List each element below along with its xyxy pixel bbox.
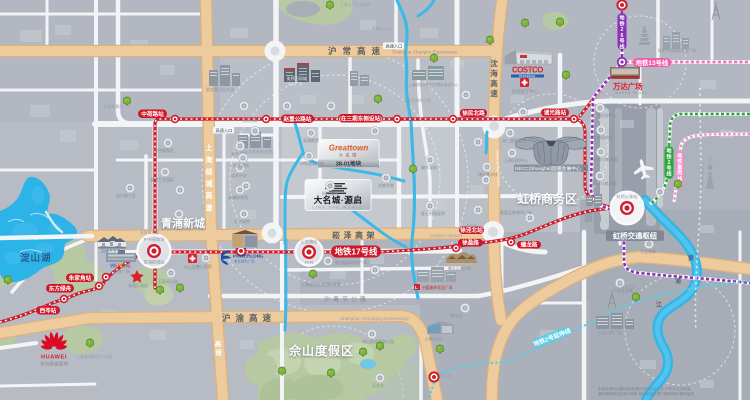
svg-text:奕仁美容医院: 奕仁美容医院 [502, 137, 526, 143]
svg-text:淀山湖: 淀山湖 [20, 252, 52, 264]
svg-text:P+R: P+R [305, 260, 313, 265]
svg-text:高速入口: 高速入口 [386, 43, 403, 50]
svg-text:佘山站: 佘山站 [440, 373, 452, 378]
svg-text:大名城·源启: 大名城·源启 [314, 194, 363, 205]
svg-text:中山医院: 中山医院 [184, 264, 200, 270]
svg-text:蟠龙天地古镇: 蟠龙天地古镇 [448, 266, 471, 271]
svg-text:虹桥T2航站楼: 虹桥T2航站楼 [593, 156, 618, 162]
svg-text:Greattown: Greattown [329, 144, 369, 153]
svg-text:虹桥医学中心: 虹桥医学中心 [512, 88, 539, 95]
svg-text:上海大千生态庄园: 上海大千生态庄园 [340, 2, 371, 7]
svg-text:上海青浦研发产业园: 上海青浦研发产业园 [76, 353, 112, 359]
svg-text:万寿塔公园: 万寿塔公园 [158, 278, 178, 284]
svg-text:Songze Viaduct: Songze Viaduct [430, 233, 463, 238]
svg-text:朱家角古镇: 朱家角古镇 [140, 230, 159, 235]
svg-text:L: L [415, 285, 418, 290]
svg-text:上海国际大学科学园区培训中心: 上海国际大学科学园区培训中心 [408, 82, 459, 87]
svg-text:上海诺亚方舟国际医院: 上海诺亚方舟国际医院 [301, 281, 341, 287]
svg-text:赵重公路站: 赵重公路站 [283, 115, 312, 123]
svg-text:崧泽高架: 崧泽高架 [332, 230, 378, 240]
svg-text:POWERLONG: POWERLONG [233, 254, 264, 259]
svg-text:徐盈路: 徐盈路 [461, 239, 479, 247]
svg-text:最终解释权归出卖人所有·部分信息来源于政府规划·敬请留意: 最终解释权归出卖人所有·部分信息来源于政府规划·敬请留意 [598, 391, 694, 396]
svg-text:虹桥枢纽中心: 虹桥枢纽中心 [592, 112, 616, 118]
svg-text:地铁嘉闵线: 地铁嘉闵线 [676, 153, 683, 183]
svg-text:高速入口: 高速入口 [216, 127, 233, 134]
svg-text:LINK THE WORLD: LINK THE WORLD [312, 206, 363, 210]
svg-text:综合保税区: 综合保税区 [154, 147, 174, 153]
svg-text:虹桥火车站: 虹桥火车站 [617, 193, 638, 200]
svg-text:七宝万科广场: 七宝万科广场 [598, 329, 622, 335]
svg-text:虹桥中国国际商业广场: 虹桥中国国际商业广场 [658, 48, 696, 53]
svg-text:毓秀学校: 毓秀学校 [421, 164, 437, 170]
svg-text:汇金路站: 汇金路站 [301, 238, 318, 245]
svg-text:诸光路站: 诸光路站 [544, 109, 567, 117]
svg-text:华为研发基地: 华为研发基地 [40, 361, 68, 368]
svg-text:山姆会员店: 山姆会员店 [425, 336, 443, 341]
svg-text:本宣传资料为要约邀请·图示仅为区位示意·不作为交付标准·: 本宣传资料为要约邀请·图示仅为区位示意·不作为交付标准· [598, 386, 691, 391]
svg-text:虹桥T1航站楼: 虹桥T1航站楼 [592, 180, 617, 186]
svg-text:吾悦广场: 吾悦广场 [113, 268, 130, 275]
svg-text:WANDA PLAZA: WANDA PLAZA [615, 91, 648, 95]
svg-text:万达广场: 万达广场 [612, 82, 643, 91]
svg-text:协和双语学校: 协和双语学校 [300, 160, 324, 166]
svg-text:青浦新城: 青浦新城 [161, 216, 205, 230]
svg-text:北青公路: 北青公路 [242, 118, 257, 123]
svg-text:中荷路站: 中荷路站 [141, 110, 164, 118]
svg-text:中国博览会: 中国博览会 [700, 161, 704, 186]
svg-text:融信湖山赋(在建): 融信湖山赋(在建) [206, 87, 236, 92]
svg-text:大名城: 大名城 [339, 152, 359, 159]
svg-text:宝龙城市广场: 宝龙城市广场 [234, 259, 255, 264]
svg-text:虹桥交通枢纽: 虹桥交通枢纽 [613, 232, 658, 241]
svg-text:西岑站: 西岑站 [40, 307, 57, 315]
svg-text:东方绿舟: 东方绿舟 [49, 285, 72, 293]
svg-text:高速出入口: 高速出入口 [372, 26, 391, 31]
svg-text:尚美学校: 尚美学校 [233, 162, 249, 168]
svg-text:中骏雍景湾: 中骏雍景湾 [104, 104, 123, 109]
svg-text:虹桥商务区: 虹桥商务区 [517, 191, 577, 206]
svg-text:COSTCO: COSTCO [512, 66, 543, 75]
svg-text:江: 江 [656, 301, 662, 309]
svg-text:Shanghai Changhu Expressway: Shanghai Changhu Expressway [392, 50, 458, 55]
svg-text:沪渝高速: 沪渝高速 [222, 313, 276, 323]
svg-text:NECC(Shanghai)国家会展中心: NECC(Shanghai)国家会展中心 [515, 165, 581, 172]
svg-text:38-01地块: 38-01地块 [336, 160, 362, 168]
svg-text:青浦教院: 青浦教院 [303, 137, 319, 143]
svg-text:HUAWEI: HUAWEI [41, 355, 67, 361]
svg-text:WHOLESALE: WHOLESALE [519, 74, 535, 78]
svg-text:天文台: 天文台 [372, 382, 384, 388]
svg-text:尚美学院: 尚美学院 [378, 182, 394, 188]
svg-text:七宝老街: 七宝老街 [640, 248, 656, 254]
svg-text:佘山度假区: 佘山度假区 [288, 343, 354, 358]
svg-text:浦: 浦 [675, 277, 681, 285]
svg-text:黄: 黄 [688, 254, 694, 262]
svg-text:上海风尚中心: 上海风尚中心 [504, 157, 528, 163]
svg-text:区中医院: 区中医院 [234, 218, 250, 224]
svg-text:朱家角站: 朱家角站 [69, 274, 92, 282]
svg-text:青浦区政府: 青浦区政府 [128, 282, 148, 288]
svg-text:虹桥保税区: 虹桥保税区 [593, 134, 613, 140]
svg-text:Shanghai Chongqing Expressway: Shanghai Chongqing Expressway [340, 316, 410, 321]
svg-text:复旦附属医院: 复旦附属医院 [421, 210, 445, 216]
svg-text:地铁17号线: 地铁17号线 [335, 247, 378, 257]
svg-text:P+R停车场: P+R停车场 [144, 236, 165, 243]
svg-text:启圆康养家居广场: 启圆康养家居广场 [422, 285, 453, 290]
svg-text:欢乐谷: 欢乐谷 [450, 312, 462, 318]
svg-text:实验中学: 实验中学 [231, 172, 247, 178]
svg-text:沪常高速: 沪常高速 [328, 46, 386, 56]
svg-text:青浦新城站: 青浦新城站 [144, 259, 165, 266]
svg-text:青浦体育馆: 青浦体育馆 [228, 194, 248, 200]
svg-text:(在三期东侧设站): (在三期东侧设站) [339, 115, 382, 123]
svg-text:科技绿洲: 科技绿洲 [322, 190, 338, 196]
svg-text:虹桥万科城: 虹桥万科城 [287, 75, 307, 81]
svg-text:高速: 高速 [215, 339, 223, 357]
svg-text:蟠龙路: 蟠龙路 [521, 241, 538, 249]
svg-text:徐民北路: 徐民北路 [461, 109, 485, 117]
svg-text:西虹桥: 西虹桥 [466, 223, 478, 228]
svg-text:虹桥国际时尚广场: 虹桥国际时尚广场 [335, 259, 367, 265]
svg-text:沪青平公路: 沪青平公路 [324, 296, 369, 304]
svg-text:爱富近铁城市广场: 爱富近铁城市广场 [500, 209, 532, 215]
svg-text:青浦工业园区: 青浦工业园区 [150, 176, 174, 182]
svg-text:地铁13号线: 地铁13号线 [636, 58, 669, 67]
svg-text:生活广场: 生活广场 [288, 81, 303, 86]
svg-text:国家会展中心西: 国家会展中心西 [404, 98, 431, 103]
svg-text:出口加工区: 出口加工区 [116, 192, 136, 198]
svg-text:七宝宝龙城: 七宝宝龙城 [617, 284, 636, 289]
